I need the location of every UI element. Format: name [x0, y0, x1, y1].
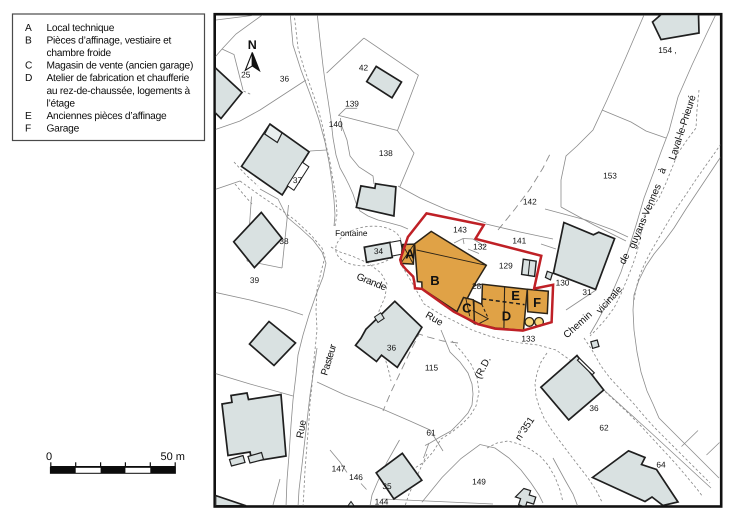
svg-text:36: 36 [387, 343, 397, 353]
svg-text:132: 132 [473, 241, 487, 251]
svg-text:64: 64 [656, 460, 666, 470]
svg-text:au rez-de-chaussée, logements: au rez-de-chaussée, logements à [47, 86, 191, 97]
svg-text:130: 130 [556, 278, 570, 288]
svg-text:42: 42 [359, 63, 369, 73]
svg-text:50 m: 50 m [161, 451, 185, 463]
svg-text:133: 133 [521, 334, 535, 344]
svg-text:Local technique: Local technique [47, 23, 115, 34]
svg-text:A: A [405, 247, 415, 262]
svg-text:Garage: Garage [47, 124, 80, 135]
svg-text:37: 37 [293, 175, 303, 185]
svg-text:143: 143 [453, 224, 467, 234]
svg-text:0: 0 [46, 451, 52, 463]
svg-text:149: 149 [472, 477, 486, 487]
svg-text:C: C [25, 61, 32, 72]
svg-text:129: 129 [499, 260, 513, 270]
svg-text:Magasin de vente (ancien garag: Magasin de vente (ancien garage) [47, 61, 194, 72]
svg-text:146: 146 [349, 472, 363, 482]
svg-text:25: 25 [241, 69, 251, 79]
svg-text:36: 36 [589, 403, 599, 413]
svg-text:F: F [25, 124, 31, 135]
svg-text:D: D [502, 309, 511, 324]
svg-text:E: E [511, 288, 520, 303]
svg-text:Atelier de fabrication et chau: Atelier de fabrication et chaufferie [47, 73, 190, 84]
svg-text:142: 142 [523, 196, 537, 206]
svg-text:N: N [248, 38, 257, 52]
svg-text:139: 139 [345, 98, 359, 108]
svg-text:A: A [25, 23, 32, 34]
svg-text:Anciennes pièces d’affinage: Anciennes pièces d’affinage [47, 111, 168, 122]
svg-text:chambre froide: chambre froide [47, 48, 112, 59]
svg-text:36: 36 [280, 74, 290, 84]
svg-text:E: E [25, 111, 32, 122]
svg-text:39: 39 [250, 275, 260, 285]
svg-text:B: B [25, 36, 32, 47]
svg-text:D: D [25, 73, 32, 84]
svg-text:38: 38 [279, 236, 289, 246]
svg-text:l’étage: l’étage [47, 98, 76, 109]
svg-text:115: 115 [425, 363, 439, 373]
svg-text:35: 35 [382, 481, 392, 491]
svg-text:B: B [430, 273, 439, 288]
svg-text:62: 62 [599, 423, 609, 433]
svg-text:61: 61 [426, 428, 436, 438]
svg-text:138: 138 [379, 148, 393, 158]
svg-text:28: 28 [472, 281, 482, 291]
svg-text:Fontaine: Fontaine [335, 228, 368, 238]
svg-text:154 ,: 154 , [658, 45, 676, 55]
svg-text:147: 147 [332, 464, 346, 474]
svg-text:C: C [462, 300, 472, 315]
svg-text:31: 31 [582, 287, 592, 297]
svg-text:F: F [533, 295, 541, 310]
svg-text:Pièces d’affinage, vestiaire e: Pièces d’affinage, vestiaire et [47, 36, 172, 47]
svg-text:141: 141 [512, 236, 526, 246]
svg-text:140: 140 [329, 119, 343, 129]
svg-text:34: 34 [374, 246, 384, 256]
svg-text:153: 153 [603, 170, 617, 180]
svg-text:144: 144 [375, 497, 389, 507]
